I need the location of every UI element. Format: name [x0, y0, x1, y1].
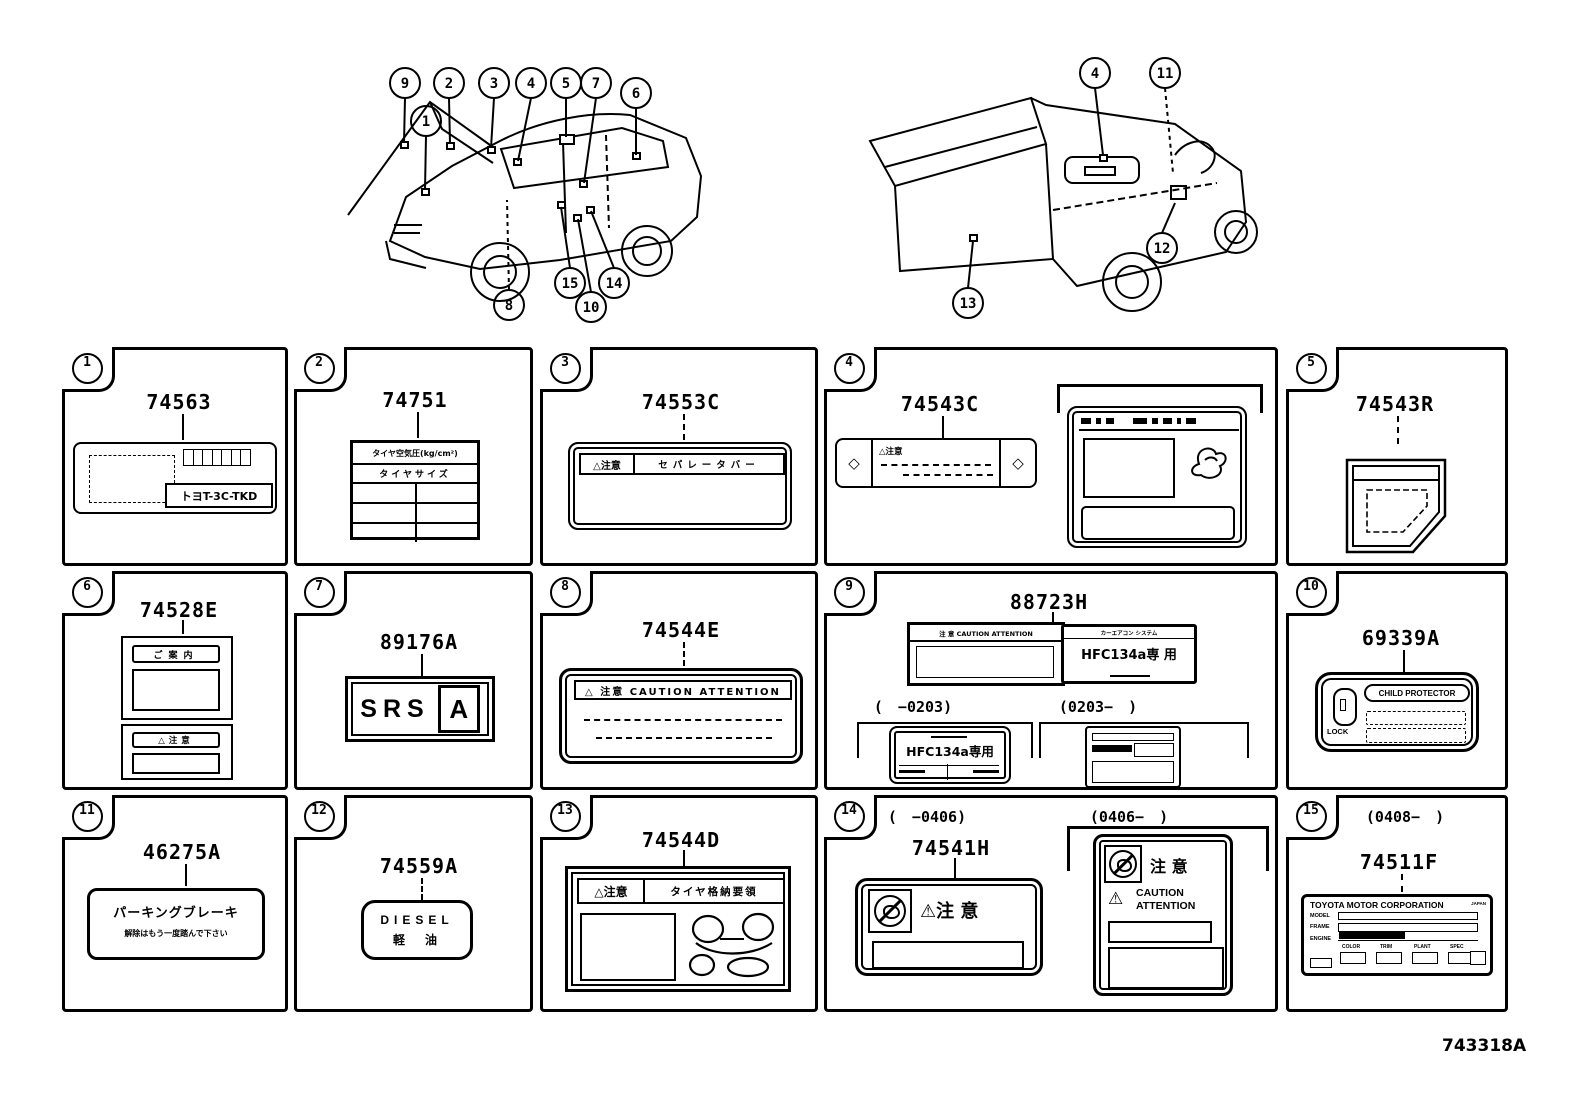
part-number: 74751	[382, 388, 447, 412]
srs-airbag-label: SRS A	[345, 676, 495, 742]
caution-attention-part: 注 意 CAUTION ATTENTION	[907, 622, 1065, 686]
callout-11: 11	[1150, 58, 1180, 173]
callout-12: 12	[1147, 203, 1177, 263]
panel-number-badge: 3	[540, 347, 593, 392]
detail-row	[899, 765, 999, 776]
date-range-late: (0406− )	[1090, 806, 1168, 827]
plant-col-label: PLANT	[1414, 944, 1431, 950]
table-row	[353, 504, 477, 524]
panel-number-badge: 6	[62, 571, 115, 616]
panel-number-badge: 8	[540, 571, 593, 616]
table-row	[353, 524, 477, 542]
aircon-header: カーエアコン システム	[1064, 627, 1194, 639]
label-window	[1092, 761, 1174, 783]
model-field	[1338, 912, 1478, 920]
hfc134a-text: HFC134a専用	[891, 741, 1009, 760]
frame-row-label: FRAME	[1310, 924, 1330, 930]
panel-3: 3 74553C △注意 セパレータバー	[540, 347, 818, 566]
label-title: タイヤ格納要領	[645, 880, 783, 902]
rear-van-diagram: 4 11 12 13	[845, 45, 1275, 335]
panel-9: 9 88723H 注 意 CAUTION ATTENTION カーエアコン シス…	[824, 571, 1278, 790]
trim-field	[1376, 952, 1402, 964]
detail-divider	[947, 764, 948, 780]
detail-line	[1366, 711, 1466, 725]
label-window	[916, 646, 1054, 678]
panel-number-badge: 7	[294, 571, 347, 616]
label-window	[132, 669, 220, 711]
svg-text:11: 11	[1157, 66, 1174, 82]
strip-body: △注意	[873, 440, 999, 486]
label-header: △注意 セパレータバー	[579, 453, 785, 475]
caution-label-lower: △注意	[121, 724, 233, 780]
panel-10: 10 69339A LOCK CHILD PROTECTOR	[1286, 571, 1508, 790]
leader-line	[182, 414, 184, 440]
corporation-title: TOYOTA MOTOR CORPORATION	[1310, 900, 1444, 910]
detail-line	[1110, 675, 1150, 677]
svg-text:13: 13	[960, 296, 977, 312]
engine-code-plate: トヨT-3C-TKD	[165, 483, 273, 508]
panel-11: 11 46275A パーキングブレーキ 解除はもう一度踏んで下さい	[62, 795, 288, 1012]
svg-text:2: 2	[445, 76, 453, 92]
callout-5: 5	[551, 68, 581, 137]
date-range-late: (0203− )	[1059, 696, 1137, 717]
svg-text:12: 12	[1154, 241, 1171, 257]
diamond-icon: ◇	[837, 440, 873, 486]
svg-text:6: 6	[632, 86, 640, 102]
part-number: 46275A	[143, 840, 221, 864]
detail-smudge	[1092, 745, 1132, 752]
tire-stowage-drawing	[684, 911, 784, 985]
detail-line	[931, 736, 967, 738]
label-window	[89, 455, 175, 503]
no-hand-box	[1104, 845, 1142, 883]
checkbox-strip	[183, 449, 251, 466]
emission-label: トヨT-3C-TKD	[73, 442, 277, 514]
frame-field	[1338, 923, 1478, 932]
svg-text:3: 3	[490, 76, 498, 92]
panel-number-badge: 12	[294, 795, 347, 840]
diesel-fuel-label: DIESEL 軽 油	[361, 900, 473, 960]
hfc134a-part: カーエアコン システム HFC134a専 用	[1061, 624, 1197, 684]
no-hand-box	[868, 889, 912, 933]
svg-text:14: 14	[606, 276, 623, 292]
caution-attention-label: △ 注意 CAUTION ATTENTION	[559, 668, 803, 764]
callout-2: 2	[434, 68, 464, 144]
hand-caution-label-late: 注 意 ⚠ CAUTIONATTENTION	[1093, 834, 1233, 996]
panel-8: 8 74544E △ 注意 CAUTION ATTENTION	[540, 571, 818, 790]
caution-text: 注 意	[1150, 853, 1188, 877]
latch-squiggle	[1175, 141, 1215, 173]
srs-text: SRS	[360, 695, 429, 724]
part-number: 74543R	[1356, 392, 1434, 416]
part-number: 69339A	[1362, 626, 1440, 650]
panel-7: 7 89176A SRS A	[294, 571, 533, 790]
open-tailgate	[870, 98, 1046, 186]
caution-text: △注意	[879, 445, 903, 457]
label-text-area	[872, 941, 1024, 969]
panel-number-badge: 13	[540, 795, 593, 840]
label-header: △ 注意 CAUTION ATTENTION	[574, 680, 792, 700]
leader-line	[683, 642, 685, 666]
date-range: (0408− )	[1366, 806, 1444, 827]
diamond-icon: ◇	[999, 440, 1035, 486]
color-col-label: COLOR	[1342, 944, 1360, 950]
caution-chip: △注意	[581, 455, 635, 473]
date-range-early: ( −0406)	[888, 806, 966, 827]
hfc134a-early-label: HFC134a専用	[889, 726, 1011, 784]
caution-header: △注意	[132, 732, 220, 748]
panel-4: 4 74543C ◇ △注意 ◇	[824, 347, 1278, 566]
part-number: 74553C	[642, 390, 720, 414]
country-text: JAPAN	[1471, 901, 1486, 906]
caution-en-text: CAUTIONATTENTION	[1136, 887, 1195, 913]
date-range-early: ( −0203)	[874, 696, 952, 717]
tire-stowage-label: △注意 タイヤ格納要領	[565, 866, 791, 992]
parking-brake-text: パーキングブレーキ	[90, 902, 262, 921]
child-protector-label: LOCK CHILD PROTECTOR	[1315, 672, 1479, 752]
part-number: 88723H	[1010, 590, 1088, 614]
detail-box	[1134, 743, 1174, 757]
callout-3: 3	[479, 68, 509, 148]
svg-text:5: 5	[562, 76, 570, 92]
warning-triangle-icon: ⚠	[1108, 889, 1123, 909]
caution-chip: △注意	[579, 880, 645, 902]
label-window	[580, 913, 676, 981]
panel-14: 14 ( −0406) (0406− ) 74541H ⚠注 意 注 意 ⚠ C…	[824, 795, 1278, 1012]
pentagon-label	[1341, 446, 1451, 558]
part-number: 74544D	[642, 828, 720, 852]
no-hand-icon	[874, 895, 906, 927]
part-number: 74544E	[642, 618, 720, 642]
table-row	[353, 484, 477, 504]
label-title: セパレータバー	[635, 455, 783, 473]
caution-header: 注 意 CAUTION ATTENTION	[910, 625, 1062, 642]
plant-field	[1412, 952, 1438, 964]
child-protector-title: CHILD PROTECTOR	[1364, 684, 1470, 702]
callout-6: 6	[621, 78, 651, 155]
warning-triangle-icon: ⚠	[920, 901, 936, 922]
tire-pressure-header: タイヤ空気圧(kg/cm²)	[353, 443, 477, 465]
van-body-outline	[1031, 98, 1246, 286]
tire-pressure-label: タイヤ空気圧(kg/cm²) タイヤサイズ	[350, 440, 480, 540]
panel-number-badge: 11	[62, 795, 115, 840]
svg-text:9: 9	[401, 76, 409, 92]
label-text-area	[1108, 947, 1224, 989]
panel-number-badge: 14	[824, 795, 877, 840]
callout-4: 4	[516, 68, 546, 161]
info-header: ご案内	[132, 645, 220, 663]
label-text-area	[1108, 921, 1212, 943]
hand-icon	[1185, 440, 1237, 492]
certification-label: TOYOTA MOTOR CORPORATION JAPAN MODEL FRA…	[1301, 894, 1493, 976]
callout-13: 13	[953, 241, 983, 318]
airbag-a-box: A	[438, 685, 480, 733]
spec-col-label: SPEC	[1450, 944, 1464, 950]
parts-catalog-page: 9 1 2 3 4 5 7 6 8 15 10 14 4 11 12 13 1 …	[0, 0, 1592, 1099]
leader-line	[683, 850, 685, 866]
leader-line	[421, 878, 423, 900]
panel-13: 13 74544D △注意 タイヤ格納要領	[540, 795, 818, 1012]
front-wheel	[1215, 211, 1257, 253]
leader-line	[417, 412, 419, 438]
part-number: 74541H	[912, 836, 990, 860]
hfc134a-late-label	[1085, 726, 1181, 788]
engine-field	[1338, 940, 1478, 941]
label-window	[1083, 438, 1175, 498]
power-rail-caution-label	[1067, 406, 1247, 548]
part-number: 74511F	[1360, 850, 1438, 874]
hfc134a-text: HFC134a専 用	[1064, 639, 1194, 667]
lock-text: LOCK	[1327, 727, 1348, 736]
label-header: △注意 タイヤ格納要領	[577, 878, 785, 904]
label-window	[132, 753, 220, 774]
panel-6: 6 74528E ご案内 △注意	[62, 571, 288, 790]
engine-row-label: ENGINE	[1310, 936, 1331, 942]
part-number: 74563	[146, 390, 211, 414]
label-text-area	[1081, 506, 1235, 540]
rear-wheel	[1103, 253, 1161, 311]
panel-number-badge: 5	[1286, 347, 1339, 392]
hand-caution-label-early: ⚠注 意	[855, 878, 1043, 976]
separator-bar-label: △注意 セパレータバー	[568, 442, 792, 530]
detail-box	[1310, 958, 1332, 968]
detail-line	[1366, 728, 1466, 743]
leader-line	[185, 864, 187, 886]
color-field	[1340, 952, 1366, 964]
detail-line	[903, 474, 993, 476]
rear-wheel	[622, 226, 672, 276]
svg-text:1: 1	[422, 114, 430, 130]
release-instruction-text: 解除はもう一度踏んで下さい	[90, 928, 262, 939]
svg-text:10: 10	[583, 300, 600, 316]
svg-text:4: 4	[1091, 66, 1099, 82]
strip-caution-label: ◇ △注意 ◇	[835, 438, 1037, 488]
leader-line	[942, 416, 944, 438]
panel-number-badge: 9	[824, 571, 877, 616]
front-van-diagram: 9 1 2 3 4 5 7 6 8 15 10 14	[330, 45, 730, 335]
parking-brake-label: パーキングブレーキ 解除はもう一度踏んで下さい	[87, 888, 265, 960]
light-oil-text: 軽 油	[364, 931, 470, 948]
figure-code: 743318A	[1442, 1036, 1526, 1056]
leader-line	[683, 414, 685, 440]
svg-text:15: 15	[562, 276, 579, 292]
leader-line	[1397, 416, 1399, 444]
tire-size-row: タイヤサイズ	[353, 465, 477, 484]
aircon-composite-label: 注 意 CAUTION ATTENTION カーエアコン システム HFC134…	[907, 622, 1197, 686]
detail-line	[881, 464, 991, 466]
leader-line	[182, 620, 184, 634]
leader-line	[421, 654, 423, 676]
diesel-text: DIESEL	[364, 913, 470, 927]
panel-number-badge: 4	[824, 347, 877, 392]
lock-lever	[1333, 688, 1357, 726]
panel-number-badge: 10	[1286, 571, 1339, 616]
open-hood-line	[348, 102, 490, 215]
leader-line	[1052, 612, 1054, 622]
detail-line	[584, 719, 782, 721]
detail-line	[596, 737, 772, 739]
panel-number-badge: 2	[294, 347, 347, 392]
panel-number-badge: 1	[62, 347, 115, 392]
panel-number-badge: 15	[1286, 795, 1339, 840]
part-number: 74559A	[380, 854, 458, 878]
part-number: 74528E	[140, 598, 218, 622]
info-label-upper: ご案内	[121, 636, 233, 720]
panel-2: 2 74751 タイヤ空気圧(kg/cm²) タイヤサイズ	[294, 347, 533, 566]
svg-text:8: 8	[505, 298, 513, 314]
callout-4: 4	[1080, 58, 1110, 155]
panel-12: 12 74559A DIESEL 軽 油	[294, 795, 533, 1012]
svg-text:7: 7	[592, 76, 600, 92]
trim-col-label: TRIM	[1380, 944, 1392, 950]
header-glyphs	[1081, 417, 1237, 424]
panel-15: 15 (0408− ) 74511F TOYOTA MOTOR CORPORAT…	[1286, 795, 1508, 1012]
part-number: 74543C	[901, 392, 979, 416]
detail-row	[1092, 733, 1174, 741]
header-divider	[1079, 429, 1239, 431]
model-row-label: MODEL	[1310, 913, 1330, 919]
part-number: 89176A	[380, 630, 458, 654]
leader-line	[1403, 650, 1405, 672]
detail-box	[1470, 951, 1486, 965]
svg-text:4: 4	[527, 76, 535, 92]
leader-line	[954, 858, 956, 878]
panel-5: 5 74543R	[1286, 347, 1508, 566]
caution-text: ⚠注 意	[920, 897, 978, 923]
panel-1: 1 74563 トヨT-3C-TKD	[62, 347, 288, 566]
no-hand-icon	[1109, 850, 1137, 878]
leader-line	[1401, 874, 1403, 892]
